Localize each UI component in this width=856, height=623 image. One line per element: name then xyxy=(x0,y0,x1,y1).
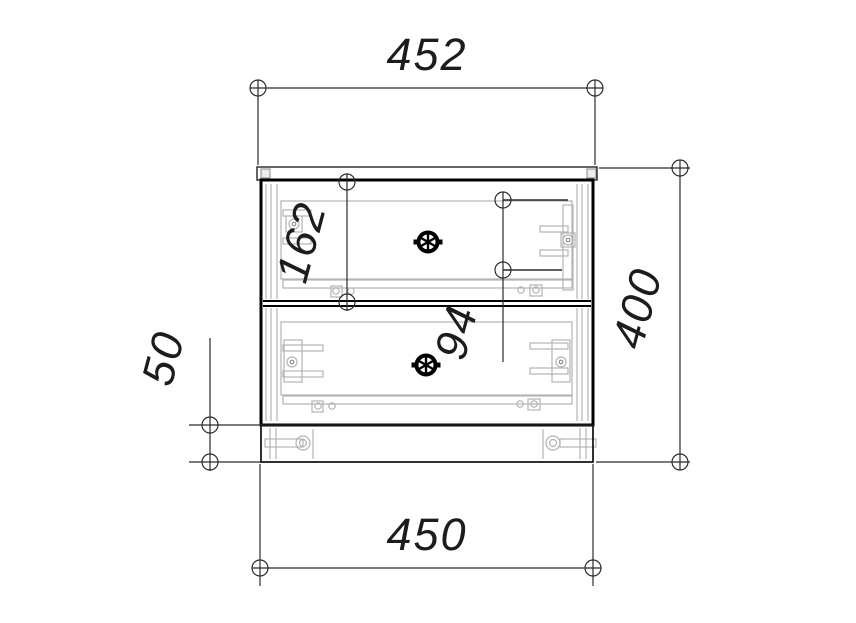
drawing-canvas: 452 450 400 50 162 94 xyxy=(0,0,856,623)
dim-label-overall-height: 400 xyxy=(602,262,672,354)
dimension-top-width xyxy=(250,80,603,165)
dimension-plinth-height xyxy=(189,338,261,471)
dim-label-slide-offset: 94 xyxy=(424,299,487,364)
technical-drawing: 452 450 400 50 162 94 xyxy=(0,0,856,623)
top-panel xyxy=(257,167,597,180)
dimension-slide-offset xyxy=(495,192,568,362)
dim-label-plinth-height: 50 xyxy=(131,325,194,390)
cam-lock-icon-top xyxy=(414,233,442,252)
plinth-legs xyxy=(265,428,596,459)
dim-label-bottom-width: 450 xyxy=(386,509,467,560)
dimension-top-drawer-height xyxy=(339,174,355,311)
cam-lock-icon-bottom xyxy=(412,356,440,375)
top-panel-fittings xyxy=(261,169,596,178)
dim-label-top-width: 452 xyxy=(386,29,467,80)
